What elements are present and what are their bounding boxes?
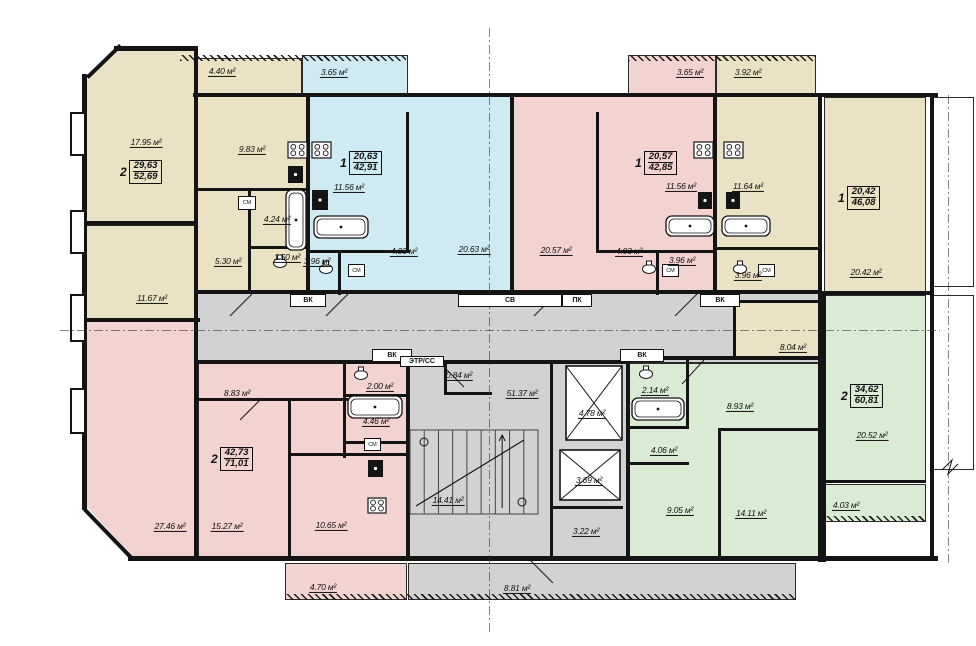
area-label: 11.67 м² [136,293,168,304]
stove-icon [368,498,386,513]
area-label: 5.30 м² [214,256,242,267]
area-label: 4.24 м² [263,214,291,225]
area-label: 20.42 м² [850,267,883,278]
area-box: 20,5742,85 [644,151,678,175]
area-label: 4.06 м² [650,445,678,456]
area-label: 3.92 м² [734,67,762,78]
area-label: 11.56 м² [665,181,697,192]
area-label: 8.04 м² [779,342,807,353]
area-label: 8.93 м² [726,401,754,412]
total-area: 46,08 [851,198,877,208]
room-count: 2 [211,452,218,466]
area-label: 3.65 м² [320,67,348,78]
floor-plan-canvas: ВКСВПКВКВКВКЭТР/СССМСМСМСМСМ229,6352,691… [0,0,976,646]
stove-icon [694,142,713,158]
toilet-tank [359,367,364,371]
area-label: 17.95 м² [130,137,163,148]
break-mark [942,460,958,474]
sink-drain [703,199,706,202]
area-label: 1.50 м² [273,252,301,263]
washer-tag: СМ [364,438,381,451]
toilet-tank [738,261,743,265]
bathtub-drain [657,408,660,411]
area-label: 14.11 м² [735,508,767,519]
area-label: 3.65 м² [676,67,704,78]
stove-icon [312,142,331,158]
sink-drain [318,198,321,201]
riser-tag: СВ [458,294,562,307]
area-label: 4.03 м² [832,500,860,511]
area-label: 11.64 м² [732,181,764,192]
area-label: 20.63 м² [458,244,491,255]
room-count: 1 [635,156,642,170]
toilet-tank [647,261,652,265]
area-label: 8.83 м² [223,388,251,399]
area-label: 4.46 м² [362,416,390,427]
room-count: 1 [838,191,845,205]
bathtub-drain [745,225,748,228]
room-count: 1 [340,156,347,170]
door-swing [230,294,252,316]
area-label: 4.93 м² [615,246,643,257]
apartment-badge: 120,6342,91 [340,151,382,175]
apartment-badge: 242,7371,01 [211,447,253,471]
room-count: 2 [841,389,848,403]
riser-tag: ВК [290,294,326,307]
area-label: 4.70 м² [309,582,337,593]
apartment-badge: 234,6260,81 [841,384,883,408]
bathtub-drain [340,226,343,229]
area-label: 0.84 м² [445,370,473,381]
area-label: 11.56 м² [333,182,365,193]
area-label: 3.96 м² [303,256,331,267]
area-label: 4.40 м² [208,66,236,77]
door-swing [326,294,348,316]
door-swing [530,560,553,583]
bathtub-drain [374,406,377,409]
sink-drain [731,199,734,202]
area-label: 4.78 м² [578,408,606,419]
riser-tag: ЭТР/СС [400,356,444,367]
door-swing [682,360,704,384]
area-box: 34,6260,81 [850,384,884,408]
toilet-icon [640,370,653,379]
area-label: 3.22 м² [572,526,600,537]
toilet-tank [644,366,649,370]
toilet-icon [355,371,368,380]
apartment-badge: 120,5742,85 [635,151,677,175]
area-label: 51.37 м² [506,388,539,399]
area-label: 3.96 м² [734,270,762,281]
area-label: 14.41 м² [432,495,465,506]
washer-tag: СМ [238,196,256,210]
area-label: 9.05 м² [666,505,694,516]
total-area: 42,85 [648,163,674,173]
area-label: 2.00 м² [366,381,394,392]
stair-marker [518,498,526,506]
toilet-icon [643,265,656,274]
washer-tag: СМ [348,264,365,277]
fixtures-layer [0,0,976,646]
area-label: 8.81 м² [503,583,531,594]
area-box: 20,6342,91 [349,151,383,175]
bathtub-drain [689,225,692,228]
area-label: 27.46 м² [154,521,187,532]
area-label: 4.93 м² [390,246,418,257]
sink-drain [294,173,297,176]
door-swing [240,398,262,420]
apartment-badge: 120,4246,08 [838,186,880,210]
sink-drain [374,467,377,470]
area-box: 29,6352,69 [129,160,163,184]
total-area: 42,91 [353,163,379,173]
area-box: 42,7371,01 [220,447,254,471]
area-label: 3.69 м² [575,475,603,486]
area-label: 20.57 м² [540,245,573,256]
area-label: 2.14 м² [641,385,669,396]
stove-icon [288,142,307,158]
bathtub-drain [295,219,298,222]
door-swing [675,294,697,316]
apartment-badge: 229,6352,69 [120,160,162,184]
room-count: 2 [120,165,127,179]
riser-tag: ВК [700,294,740,307]
stove-icon [724,142,743,158]
area-box: 20,4246,08 [847,186,881,210]
total-area: 71,01 [224,459,250,469]
riser-tag: ВК [620,349,664,362]
area-label: 20.52 м² [856,430,889,441]
riser-tag: ПК [562,294,592,307]
area-label: 9.83 м² [238,144,266,155]
total-area: 60,81 [854,396,880,406]
area-label: 10.65 м² [315,520,348,531]
total-area: 52,69 [133,172,159,182]
area-label: 15.27 м² [211,521,244,532]
area-label: 3.96 м² [668,255,696,266]
